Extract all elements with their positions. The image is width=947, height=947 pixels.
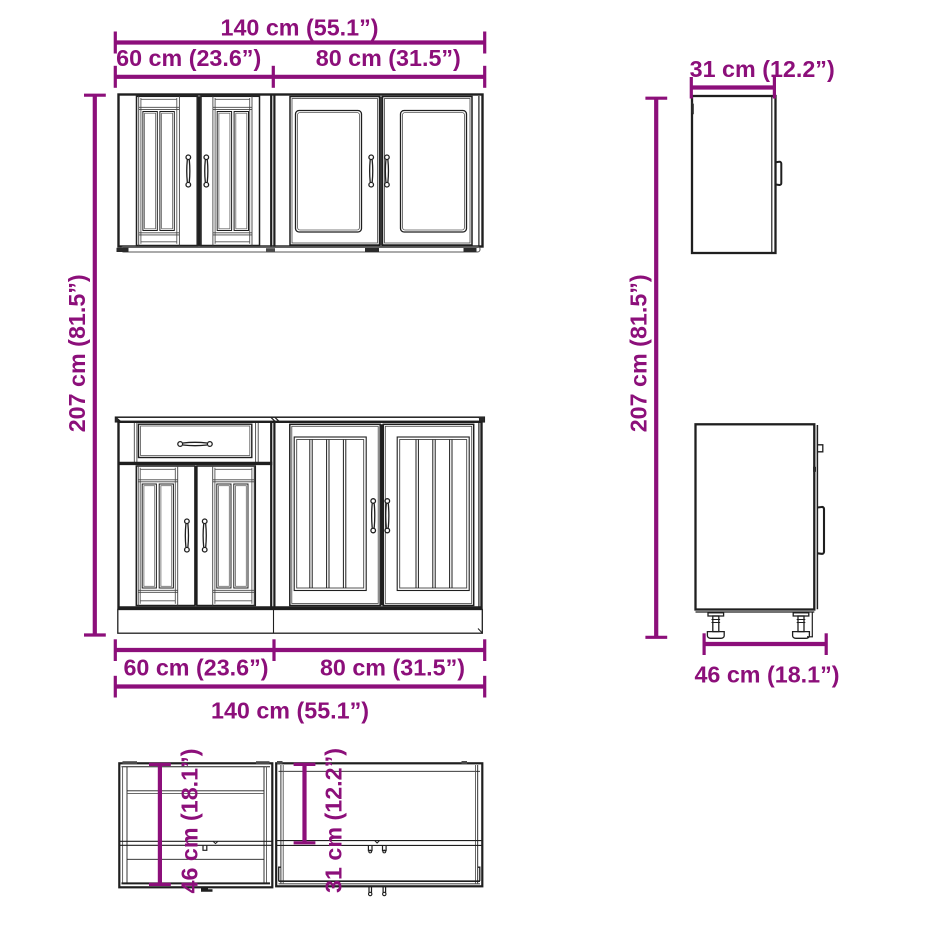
svg-text:60 cm (23.6”): 60 cm (23.6”) [123, 655, 268, 681]
svg-text:140 cm (55.1”): 140 cm (55.1”) [221, 15, 379, 41]
svg-text:31 cm (12.2”): 31 cm (12.2”) [321, 748, 347, 893]
svg-text:207 cm (81.5”): 207 cm (81.5”) [626, 274, 652, 432]
svg-text:60 cm (23.6”): 60 cm (23.6”) [116, 45, 261, 71]
svg-text:31 cm (12.2”): 31 cm (12.2”) [690, 56, 835, 82]
svg-text:46 cm (18.1”): 46 cm (18.1”) [177, 748, 203, 893]
svg-text:207 cm (81.5”): 207 cm (81.5”) [64, 274, 90, 432]
svg-text:46 cm (18.1”): 46 cm (18.1”) [694, 662, 839, 688]
svg-text:80 cm (31.5”): 80 cm (31.5”) [320, 655, 465, 681]
svg-text:140 cm (55.1”): 140 cm (55.1”) [211, 698, 369, 724]
svg-text:80 cm (31.5”): 80 cm (31.5”) [316, 45, 461, 71]
